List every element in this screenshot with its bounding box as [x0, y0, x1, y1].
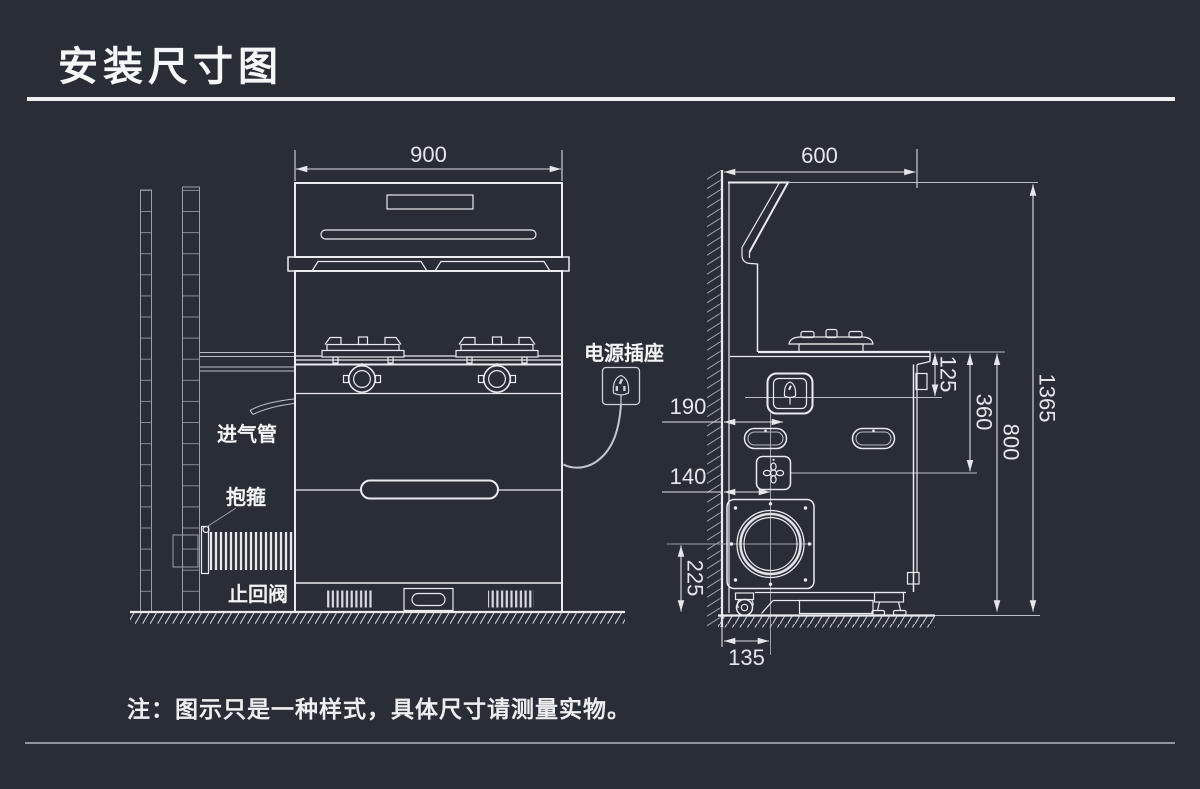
technical-drawing: 900 [0, 0, 1200, 789]
power-cord [564, 404, 622, 468]
plug-icon [613, 375, 628, 394]
side-wall [707, 170, 729, 627]
side-view: 600 125 360 800 1365 190 140 225 135 [662, 143, 1060, 670]
nameplate [404, 589, 453, 611]
lower-cabinet [295, 271, 562, 612]
rear-hook [916, 374, 927, 390]
bottom-divider [25, 742, 1175, 744]
drawer-handle [361, 481, 498, 499]
base-assembly [736, 593, 907, 616]
front-view: 900 [130, 142, 664, 624]
gas-valve-recess [757, 457, 791, 490]
power-socket-callout: 电源插座 [564, 341, 665, 468]
dim-label-800: 800 [999, 424, 1024, 461]
clamp-label: 抱箍 [226, 485, 266, 509]
hood-profile [728, 183, 788, 353]
dim-label-190: 190 [670, 394, 707, 419]
dim-label-125: 125 [936, 356, 961, 393]
dim-label-140: 140 [670, 464, 707, 489]
check-valve-label: 止回阀 [228, 583, 288, 606]
dim-label-225: 225 [683, 560, 708, 597]
counter-band [288, 257, 569, 271]
left-burner [322, 337, 404, 363]
top-cabinet [295, 183, 562, 257]
front-ground [130, 612, 625, 624]
right-burner [456, 337, 538, 363]
left-vent-grille [327, 591, 373, 608]
left-control-knob [344, 363, 381, 392]
burner-side-profile [789, 330, 873, 353]
gas-hose [250, 399, 294, 415]
leveling-foot [872, 611, 885, 616]
stove-front-outline [288, 183, 569, 612]
dim-label-360: 360 [972, 394, 997, 431]
dim-front-width: 900 [295, 142, 562, 181]
wall-columns [141, 187, 200, 612]
side-ground [718, 616, 1040, 628]
dim-label-900: 900 [410, 142, 447, 167]
dim-label-135: 135 [728, 645, 765, 670]
right-vent-grille [488, 591, 534, 608]
cable-slot-right [853, 429, 895, 449]
footnote: 注：图示只是一种样式，具体尺寸请测量实物。 [127, 690, 631, 724]
base-platform [800, 601, 874, 614]
vent-slot [321, 230, 536, 239]
corrugated-pipe [210, 532, 295, 570]
cable-slot-left [745, 429, 787, 449]
power-socket-label: 电源插座 [584, 341, 664, 365]
dim-label-600: 600 [801, 143, 838, 168]
gas-duct [200, 353, 294, 372]
right-control-knob [479, 363, 516, 392]
nameplate-inner [412, 594, 445, 606]
cooktop [295, 337, 562, 394]
socket-recess [768, 374, 813, 414]
foot-bracket [875, 593, 904, 603]
gas-inlet-label: 进气管 [217, 422, 277, 446]
side-body [730, 352, 930, 592]
clamp-leader-line [207, 508, 237, 527]
display-panel [387, 195, 473, 209]
pipe-flange [202, 527, 209, 574]
installation-diagram-page: 安装尺寸图 [0, 0, 1200, 789]
leveling-foot [894, 611, 907, 616]
caster-bracket [736, 593, 754, 600]
dim-label-1365: 1365 [1035, 374, 1060, 423]
front-lower-details [295, 481, 562, 611]
